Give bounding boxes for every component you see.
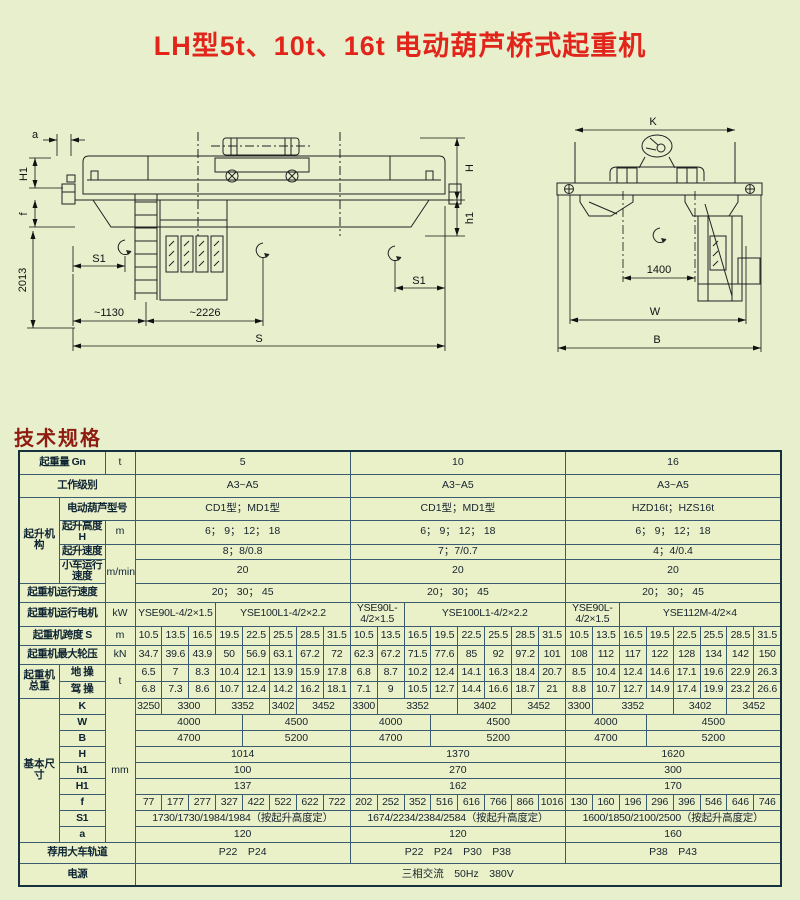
hoist-trolley [211, 138, 311, 182]
value-cell: 26.3 [754, 664, 781, 681]
value-cell: 10 [350, 451, 565, 474]
row-label-cell: f [59, 794, 105, 810]
value-cell: 17.8 [323, 664, 350, 681]
row-label-cell: H [59, 746, 105, 762]
group-label-cell: 起重机总重 [19, 664, 59, 698]
value-cell: 50 [216, 645, 243, 664]
value-cell: 28.5 [512, 626, 539, 645]
value-cell: 22.9 [727, 664, 754, 681]
value-cell: 3300 [566, 698, 593, 714]
value-cell: P22 P24 P30 P38 [350, 842, 565, 863]
value-cell: 12.4 [619, 664, 646, 681]
value-cell: 766 [485, 794, 512, 810]
end-view-drawing: K 1400 W B [557, 116, 762, 352]
hook-symbol [653, 228, 666, 243]
dim-k: K [575, 116, 735, 130]
dim-label-1400: 1400 [647, 264, 671, 276]
unit-cell: mm [105, 698, 135, 842]
value-cell: CD1型；MD1型 [135, 497, 350, 520]
value-cell: 162 [350, 778, 565, 794]
row-label-cell: S1 [59, 810, 105, 826]
value-cell: 4700 [135, 730, 243, 746]
dim-2226: ~2226 [146, 307, 263, 321]
value-cell: 15.9 [296, 664, 323, 681]
spec-row: 起重机最大轮压kN34.739.643.95056.963.167.27262.… [19, 645, 781, 664]
value-cell: 7 [162, 664, 189, 681]
value-cell: 5200 [431, 730, 566, 746]
value-cell: A3~A5 [135, 474, 350, 497]
value-cell: 21 [539, 681, 566, 698]
value-cell: 19.5 [646, 626, 673, 645]
dim-1400: 1400 [623, 191, 695, 282]
row-label-cell: a [59, 826, 105, 842]
value-cell: 14.4 [458, 681, 485, 698]
value-cell: 134 [700, 645, 727, 664]
value-cell: 6； 9； 12； 18 [350, 520, 565, 544]
value-cell: 三相交流 50Hz 380V [135, 863, 781, 886]
value-cell: 516 [431, 794, 458, 810]
value-cell: A3~A5 [350, 474, 565, 497]
hook-symbol [388, 246, 401, 261]
value-cell: 16 [566, 451, 782, 474]
value-cell: YSE90L-4/2×1.5 [135, 602, 216, 626]
value-cell: 3402 [673, 698, 727, 714]
value-cell: 100 [135, 762, 350, 778]
value-cell: 8.5 [566, 664, 593, 681]
value-cell: 296 [646, 794, 673, 810]
value-cell: 18.1 [323, 681, 350, 698]
value-cell: 117 [619, 645, 646, 664]
dim-label-s1-right: S1 [412, 275, 425, 287]
value-cell: 16.2 [296, 681, 323, 698]
spec-row: 起重机运行电机kWYSE90L-4/2×1.5YSE100L1-4/2×2.2Y… [19, 602, 781, 626]
value-cell: 26.6 [754, 681, 781, 698]
value-cell: 4500 [431, 714, 566, 730]
dim-s1-right: S1 [395, 260, 445, 292]
value-cell: 128 [673, 645, 700, 664]
value-cell: 67.2 [377, 645, 404, 664]
value-cell: 3300 [162, 698, 216, 714]
value-cell: 142 [727, 645, 754, 664]
value-cell: 5200 [243, 730, 351, 746]
value-cell: 10.5 [135, 626, 162, 645]
spec-row: 起升速度m/min8；8/0.87；7/0.74；4/0.4 [19, 544, 781, 559]
end-buffer-left [62, 175, 75, 204]
value-cell: 12.4 [243, 681, 270, 698]
value-cell: 10.5 [404, 681, 431, 698]
value-cell: 101 [539, 645, 566, 664]
dim-label-a: a [32, 129, 39, 141]
value-cell: 4700 [566, 730, 647, 746]
value-cell: A3~A5 [566, 474, 782, 497]
value-cell: 4500 [243, 714, 351, 730]
value-cell: 177 [162, 794, 189, 810]
value-cell: 8；8/0.8 [135, 544, 350, 559]
value-cell: 252 [377, 794, 404, 810]
row-label-cell: K [59, 698, 105, 714]
value-cell: 1014 [135, 746, 350, 762]
value-cell: 16.5 [404, 626, 431, 645]
value-cell: 34.7 [135, 645, 162, 664]
row-label-cell: W [59, 714, 105, 730]
hook-symbol [118, 240, 131, 255]
value-cell: YSE90L-4/2×1.5 [350, 602, 404, 626]
value-cell: YSE112M-4/2×4 [619, 602, 781, 626]
row-label-cell: 起升速度 [59, 544, 105, 559]
value-cell: 18.7 [512, 681, 539, 698]
value-cell: 72 [323, 645, 350, 664]
value-cell: 20； 30； 45 [135, 583, 350, 602]
value-cell: 3300 [350, 698, 377, 714]
value-cell: 12.7 [431, 681, 458, 698]
value-cell: 327 [216, 794, 243, 810]
value-cell: 62.3 [350, 645, 377, 664]
spec-table: 起重量 Gnt51016工作级别A3~A5A3~A5A3~A5起升机构电动葫芦型… [18, 450, 782, 887]
value-cell: 13.5 [592, 626, 619, 645]
row-label-cell: 起重机运行速度 [19, 583, 105, 602]
value-cell: 16.5 [619, 626, 646, 645]
value-cell: 71.5 [404, 645, 431, 664]
value-cell: 546 [700, 794, 727, 810]
dim-a: a [32, 129, 85, 156]
value-cell: 7.1 [350, 681, 377, 698]
dim-s1-left: S1 [73, 246, 125, 272]
value-cell: 3250 [135, 698, 162, 714]
value-cell: 14.2 [270, 681, 297, 698]
value-cell: 4000 [135, 714, 243, 730]
value-cell: YSE100L1-4/2×2.2 [404, 602, 565, 626]
dim-h1-right: h1 [425, 200, 476, 236]
value-cell: 19.5 [216, 626, 243, 645]
value-cell: 19.5 [431, 626, 458, 645]
value-cell: 6； 9； 12； 18 [566, 520, 782, 544]
spec-row: 起升机构电动葫芦型号CD1型；MD1型CD1型；MD1型HZD16t；HZS16… [19, 497, 781, 520]
dim-label-k: K [649, 116, 657, 128]
value-cell: 22.5 [243, 626, 270, 645]
spec-row: 电源三相交流 50Hz 380V [19, 863, 781, 886]
row-label-cell: B [59, 730, 105, 746]
value-cell: 3452 [512, 698, 566, 714]
value-cell: 160 [592, 794, 619, 810]
value-cell: 92 [485, 645, 512, 664]
row-label-cell: 荐用大车轨道 [19, 842, 135, 863]
value-cell: 866 [512, 794, 539, 810]
value-cell: 20.7 [539, 664, 566, 681]
value-cell: 31.5 [754, 626, 781, 645]
value-cell: 20 [135, 559, 350, 583]
value-cell: 8.6 [189, 681, 216, 698]
value-cell: 5200 [646, 730, 781, 746]
row-label-cell: 电源 [19, 863, 135, 886]
spec-row: 基本尺寸Kmm325033003352340234523300335234023… [19, 698, 781, 714]
value-cell: 22.5 [673, 626, 700, 645]
spec-row: 荐用大车轨道P22 P24P22 P24 P30 P38P38 P43 [19, 842, 781, 863]
value-cell: 1674/2234/2384/2584（按起升高度定） [350, 810, 565, 826]
side-view-drawing: a H1 f 2013 S1 [17, 129, 476, 351]
spec-row: 起重机总重地 操t6.578.310.412.113.915.917.86.88… [19, 664, 781, 681]
value-cell: 14.9 [646, 681, 673, 698]
value-cell: 7；7/0.7 [350, 544, 565, 559]
value-cell: 7.3 [162, 681, 189, 698]
value-cell: 170 [566, 778, 782, 794]
dim-label-h: H [464, 164, 476, 172]
group-label-cell: 基本尺寸 [19, 698, 59, 842]
value-cell: P38 P43 [566, 842, 782, 863]
spec-row: 起重量 Gnt51016 [19, 451, 781, 474]
page: { "title": "LH型5t、10t、16t 电动葫芦桥式起重机", "s… [0, 0, 800, 900]
dim-label-s: S [255, 333, 262, 345]
end-buffer-right [449, 184, 461, 204]
value-cell: 4000 [566, 714, 647, 730]
hook-symbol [256, 243, 269, 258]
value-cell: 646 [727, 794, 754, 810]
value-cell: 17.4 [673, 681, 700, 698]
row-label-cell: h1 [59, 762, 105, 778]
dim-label-1130: ~1130 [94, 307, 124, 319]
unit-cell: kW [105, 602, 135, 626]
value-cell: 8.7 [377, 664, 404, 681]
technical-drawings: a H1 f 2013 S1 [5, 96, 797, 414]
value-cell: 31.5 [323, 626, 350, 645]
value-cell: 20； 30； 45 [566, 583, 782, 602]
value-cell: 1600/1850/2100/2500（按起升高度定） [566, 810, 782, 826]
value-cell: 112 [592, 645, 619, 664]
unit-cell: t [105, 451, 135, 474]
value-cell: 25.5 [485, 626, 512, 645]
value-cell: 616 [458, 794, 485, 810]
value-cell: 300 [566, 762, 782, 778]
value-cell: 3352 [377, 698, 458, 714]
dim-label-h1-right: h1 [464, 212, 476, 224]
value-cell: 43.9 [189, 645, 216, 664]
value-cell: YSE90L-4/2×1.5 [566, 602, 620, 626]
dim-s: S [73, 206, 445, 351]
row-label-cell: 起重量 Gn [19, 451, 105, 474]
value-cell: 67.2 [296, 645, 323, 664]
row-label-cell: 起重机运行电机 [19, 602, 105, 626]
value-cell: 1730/1730/1984/1984（按起升高度定） [135, 810, 350, 826]
row-label-cell: H1 [59, 778, 105, 794]
row-label-cell: 起重机跨度 S [19, 626, 105, 645]
value-cell: 4500 [646, 714, 781, 730]
value-cell: 4700 [350, 730, 431, 746]
girder [83, 156, 445, 194]
unit-cell: m/min [105, 544, 135, 602]
dim-h-right: H [420, 138, 476, 200]
value-cell: 137 [135, 778, 350, 794]
value-cell: 622 [296, 794, 323, 810]
value-cell: 20 [350, 559, 565, 583]
value-cell: 4；4/0.4 [566, 544, 782, 559]
row-label-cell: 起升高度H [59, 520, 105, 544]
value-cell: 196 [619, 794, 646, 810]
value-cell: 13.5 [377, 626, 404, 645]
value-cell: 746 [754, 794, 781, 810]
value-cell: 10.5 [566, 626, 593, 645]
row-label-cell: 工作级别 [19, 474, 135, 497]
trolley-frame-end [610, 167, 704, 183]
end-girder [557, 183, 762, 195]
value-cell: 28.5 [296, 626, 323, 645]
value-cell: 120 [135, 826, 350, 842]
trolley-motor [639, 135, 675, 168]
value-cell: YSE100L1-4/2×2.2 [216, 602, 351, 626]
dim-w: W [570, 195, 746, 324]
value-cell: 14.1 [458, 664, 485, 681]
value-cell: 3452 [296, 698, 350, 714]
value-cell: P22 P24 [135, 842, 350, 863]
value-cell: 4000 [350, 714, 431, 730]
dim-label-2226: ~2226 [190, 307, 221, 319]
value-cell: CD1型；MD1型 [350, 497, 565, 520]
value-cell: 16.5 [189, 626, 216, 645]
row-label-cell: 地 操 [59, 664, 105, 681]
value-cell: 3352 [592, 698, 673, 714]
value-cell: 10.2 [404, 664, 431, 681]
value-cell: 130 [566, 794, 593, 810]
value-cell: 6.8 [350, 664, 377, 681]
value-cell: 3352 [216, 698, 270, 714]
value-cell: 10.7 [592, 681, 619, 698]
right-bracket [685, 195, 738, 216]
value-cell: 20 [566, 559, 782, 583]
value-cell: 150 [754, 645, 781, 664]
driver-cab [160, 200, 227, 300]
value-cell: 396 [673, 794, 700, 810]
value-cell: 22.5 [458, 626, 485, 645]
dim-label-2013: 2013 [17, 268, 29, 292]
value-cell: 120 [350, 826, 565, 842]
value-cell: 422 [243, 794, 270, 810]
value-cell: 18.4 [512, 664, 539, 681]
row-label-cell: 驾 操 [59, 681, 105, 698]
value-cell: 56.9 [243, 645, 270, 664]
unit-cell: t [105, 664, 135, 698]
dim-2013: 2013 [17, 231, 75, 328]
value-cell: 9 [377, 681, 404, 698]
value-cell: 23.2 [727, 681, 754, 698]
value-cell: 277 [189, 794, 216, 810]
value-cell: 722 [323, 794, 350, 810]
value-cell: 14.6 [646, 664, 673, 681]
value-cell: 3452 [727, 698, 781, 714]
value-cell: 352 [404, 794, 431, 810]
value-cell: 10.5 [350, 626, 377, 645]
value-cell: 25.5 [700, 626, 727, 645]
left-bracket [580, 195, 633, 216]
value-cell: 13.5 [162, 626, 189, 645]
value-cell: 108 [566, 645, 593, 664]
spec-row: 起重机跨度 Sm10.513.516.519.522.525.528.531.5… [19, 626, 781, 645]
ladder [135, 194, 157, 300]
value-cell: 16.3 [485, 664, 512, 681]
value-cell: 5 [135, 451, 350, 474]
row-label-cell: 起重机最大轮压 [19, 645, 105, 664]
dim-1130: ~1130 [73, 258, 263, 326]
dim-label-s1-left: S1 [92, 253, 105, 265]
hoist-body [698, 204, 760, 301]
value-cell: 19.9 [700, 681, 727, 698]
value-cell: 270 [350, 762, 565, 778]
value-cell: 12.1 [243, 664, 270, 681]
row-label-cell: 小车运行速度 [59, 559, 105, 583]
value-cell: 25.5 [270, 626, 297, 645]
value-cell: 202 [350, 794, 377, 810]
walkway [93, 200, 429, 227]
value-cell: 122 [646, 645, 673, 664]
value-cell: 13.9 [270, 664, 297, 681]
value-cell: 8.8 [566, 681, 593, 698]
unit-cell: kN [105, 645, 135, 664]
value-cell: 522 [270, 794, 297, 810]
value-cell: 19.6 [700, 664, 727, 681]
row-label-cell: 电动葫芦型号 [59, 497, 135, 520]
dim-label-b: B [653, 334, 660, 346]
value-cell: 97.2 [512, 645, 539, 664]
value-cell: 6.5 [135, 664, 162, 681]
value-cell: 10.7 [216, 681, 243, 698]
value-cell: 6； 9； 12； 18 [135, 520, 350, 544]
group-label-cell: 起升机构 [19, 497, 59, 583]
dim-h1-left: H1 [18, 158, 63, 188]
value-cell: 39.6 [162, 645, 189, 664]
value-cell: 77 [135, 794, 162, 810]
dim-label-w: W [650, 306, 661, 318]
value-cell: 63.1 [270, 645, 297, 664]
value-cell: 17.1 [673, 664, 700, 681]
value-cell: 10.4 [216, 664, 243, 681]
value-cell: 16.6 [485, 681, 512, 698]
page-title: LH型5t、10t、16t 电动葫芦桥式起重机 [0, 24, 800, 63]
value-cell: 12.7 [619, 681, 646, 698]
value-cell: 8.3 [189, 664, 216, 681]
value-cell: 6.8 [135, 681, 162, 698]
dim-label-h1-left: H1 [18, 167, 30, 181]
section-heading: 技术规格 [14, 422, 102, 451]
value-cell: 77.6 [431, 645, 458, 664]
value-cell: 28.5 [727, 626, 754, 645]
unit-cell: m [105, 626, 135, 645]
value-cell: 1620 [566, 746, 782, 762]
value-cell: 3402 [458, 698, 512, 714]
value-cell: 10.4 [592, 664, 619, 681]
value-cell: 20； 30； 45 [350, 583, 565, 602]
value-cell: 12.4 [431, 664, 458, 681]
spec-row: 工作级别A3~A5A3~A5A3~A5 [19, 474, 781, 497]
value-cell: 85 [458, 645, 485, 664]
spec-row: 起升高度Hm6； 9； 12； 186； 9； 12； 186； 9； 12； … [19, 520, 781, 544]
unit-cell: m [105, 520, 135, 544]
value-cell: 31.5 [539, 626, 566, 645]
value-cell: 160 [566, 826, 782, 842]
value-cell: 3402 [270, 698, 297, 714]
value-cell: HZD16t；HZS16t [566, 497, 782, 520]
dim-label-f: f [18, 212, 30, 216]
value-cell: 1370 [350, 746, 565, 762]
value-cell: 1016 [539, 794, 566, 810]
